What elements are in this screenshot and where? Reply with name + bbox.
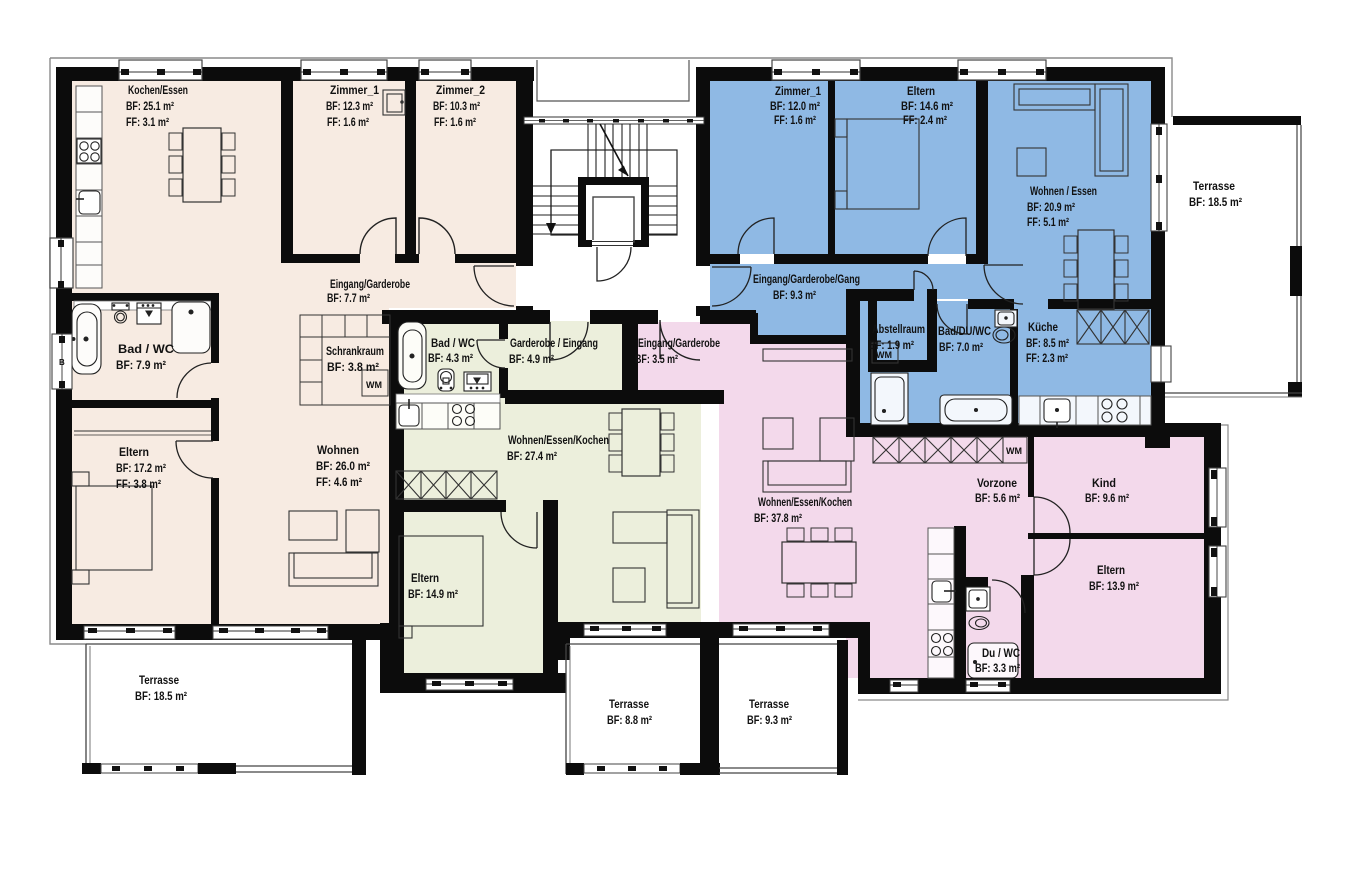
svg-text:BF: 13.9 m²: BF: 13.9 m²	[1089, 579, 1139, 593]
svg-text:BF: 18.5 m²: BF: 18.5 m²	[135, 689, 187, 703]
svg-text:BF: 10.3 m²: BF: 10.3 m²	[433, 99, 480, 113]
svg-text:Bad / WC: Bad / WC	[118, 342, 174, 356]
svg-text:Bad / WC: Bad / WC	[431, 336, 475, 350]
svg-text:FF: 2.4 m²: FF: 2.4 m²	[903, 113, 947, 127]
svg-text:Terrasse: Terrasse	[139, 673, 179, 687]
svg-text:Abstellraum: Abstellraum	[872, 322, 925, 336]
svg-text:FF: 5.1 m²: FF: 5.1 m²	[1027, 215, 1069, 229]
svg-text:FF: 4.6 m²: FF: 4.6 m²	[316, 475, 362, 489]
svg-text:Eingang/Garderobe/Gang: Eingang/Garderobe/Gang	[753, 272, 860, 286]
svg-text:BF: 9.6 m²: BF: 9.6 m²	[1085, 491, 1129, 505]
svg-text:BF: 25.1 m²: BF: 25.1 m²	[126, 99, 174, 113]
svg-text:Garderobe / Eingang: Garderobe / Eingang	[510, 336, 598, 350]
svg-text:BF: 4.9 m²: BF: 4.9 m²	[509, 352, 554, 366]
svg-text:BF: 8.5 m²: BF: 8.5 m²	[1026, 336, 1069, 350]
svg-text:Eltern: Eltern	[1097, 563, 1125, 577]
svg-text:BF: 3.5 m²: BF: 3.5 m²	[635, 352, 678, 366]
svg-text:BF: 7.0 m²: BF: 7.0 m²	[939, 340, 983, 354]
svg-text:BF: 17.2 m²: BF: 17.2 m²	[116, 461, 166, 475]
svg-text:BF: 9.3 m²: BF: 9.3 m²	[773, 288, 816, 302]
svg-text:Schrankraum: Schrankraum	[326, 344, 384, 358]
svg-text:BF: 14.6 m²: BF: 14.6 m²	[901, 99, 953, 113]
svg-text:BF: 37.8 m²: BF: 37.8 m²	[754, 511, 802, 525]
svg-text:Terrasse: Terrasse	[749, 697, 789, 711]
svg-text:Zimmer_1: Zimmer_1	[330, 83, 379, 97]
svg-text:Wohnen: Wohnen	[317, 443, 359, 457]
svg-text:BF: 8.8 m²: BF: 8.8 m²	[607, 713, 652, 727]
svg-text:Terrasse: Terrasse	[609, 697, 649, 711]
svg-text:BF: 7.9 m²: BF: 7.9 m²	[116, 358, 166, 372]
svg-text:BF: 5.6 m²: BF: 5.6 m²	[975, 491, 1020, 505]
svg-text:BF: 18.5 m²: BF: 18.5 m²	[1189, 195, 1242, 209]
svg-text:FF: 1.6 m²: FF: 1.6 m²	[774, 113, 816, 127]
svg-text:WM: WM	[1006, 446, 1022, 456]
svg-text:Eingang/Garderobe: Eingang/Garderobe	[330, 277, 410, 291]
svg-text:BF: 3.8 m²: BF: 3.8 m²	[327, 360, 379, 374]
svg-text:Eltern: Eltern	[119, 445, 149, 459]
svg-text:BF: 7.7 m²: BF: 7.7 m²	[327, 291, 370, 305]
svg-text:Wohnen / Essen: Wohnen / Essen	[1030, 184, 1097, 198]
svg-text:BF: 4.3 m²: BF: 4.3 m²	[428, 351, 473, 365]
svg-text:FF: 3.1 m²: FF: 3.1 m²	[126, 115, 169, 129]
svg-text:Kochen/Essen: Kochen/Essen	[128, 83, 188, 97]
svg-text:Eingang/Garderobe: Eingang/Garderobe	[638, 336, 720, 350]
svg-text:Zimmer_1: Zimmer_1	[775, 84, 821, 98]
svg-text:FF: 1.6 m²: FF: 1.6 m²	[434, 115, 476, 129]
svg-text:BF: 9.3 m²: BF: 9.3 m²	[747, 713, 792, 727]
svg-text:Küche: Küche	[1028, 320, 1058, 334]
svg-text:Kind: Kind	[1092, 476, 1116, 490]
svg-text:Wohnen/Essen/Kochen: Wohnen/Essen/Kochen	[758, 495, 852, 509]
svg-text:BF: 3.3 m²: BF: 3.3 m²	[975, 661, 1020, 675]
svg-text:Eltern: Eltern	[411, 571, 439, 585]
svg-text:BF: 20.9 m²: BF: 20.9 m²	[1027, 200, 1075, 214]
svg-text:FF: 1.6 m²: FF: 1.6 m²	[327, 115, 369, 129]
svg-text:Zimmer_2: Zimmer_2	[436, 83, 485, 97]
svg-text:Vorzone: Vorzone	[977, 476, 1017, 490]
svg-text:Wohnen/Essen/Kochen: Wohnen/Essen/Kochen	[508, 433, 609, 447]
svg-text:BF: 14.9 m²: BF: 14.9 m²	[408, 587, 458, 601]
svg-text:WM: WM	[366, 380, 382, 390]
svg-text:Du / WC: Du / WC	[982, 646, 1020, 660]
svg-text:FF: 2.3 m²: FF: 2.3 m²	[1026, 351, 1068, 365]
svg-text:BF: 1.9 m²: BF: 1.9 m²	[869, 338, 914, 352]
svg-text:Eltern: Eltern	[907, 84, 935, 98]
svg-text:B: B	[59, 358, 65, 367]
svg-text:BF: 12.0 m²: BF: 12.0 m²	[770, 99, 820, 113]
svg-text:Terrasse: Terrasse	[1193, 179, 1235, 193]
svg-text:BF: 26.0 m²: BF: 26.0 m²	[316, 459, 370, 473]
svg-text:BF: 27.4 m²: BF: 27.4 m²	[507, 449, 557, 463]
svg-text:BF: 12.3 m²: BF: 12.3 m²	[326, 99, 373, 113]
svg-text:FF: 3.8 m²: FF: 3.8 m²	[116, 477, 161, 491]
svg-text:Bad/DU/WC: Bad/DU/WC	[938, 324, 991, 338]
